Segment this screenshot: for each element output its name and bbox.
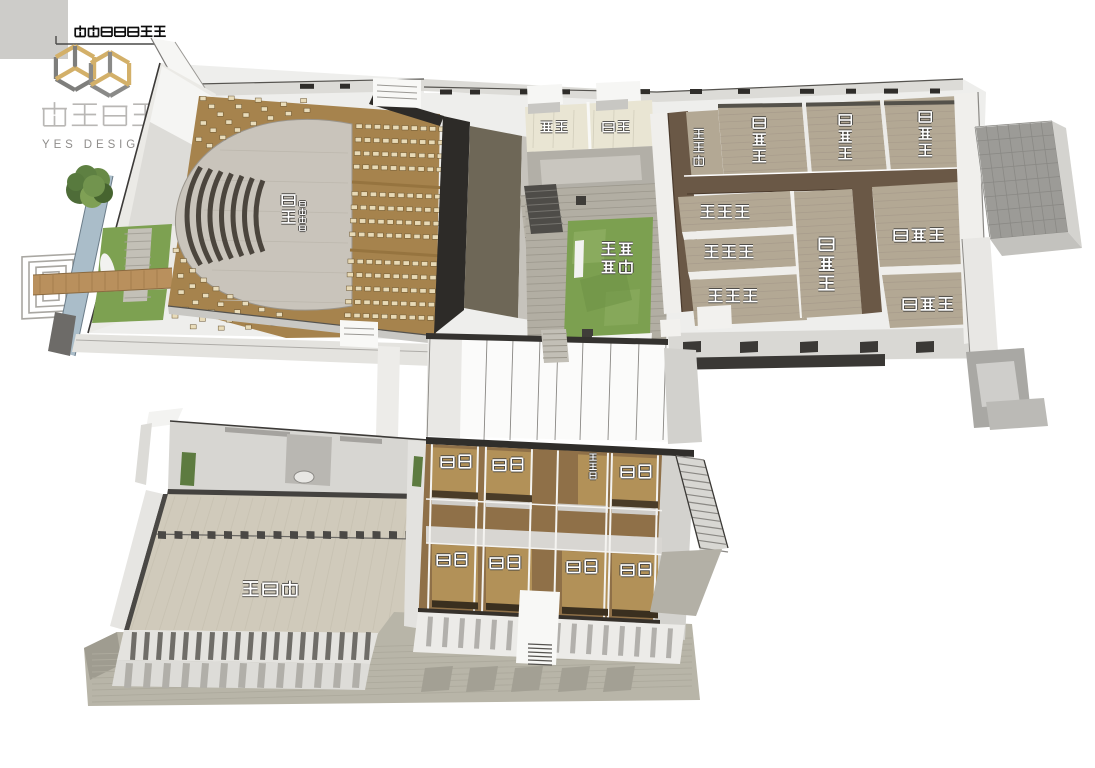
svg-text:YES DESIGN: YES DESIGN (42, 139, 151, 151)
